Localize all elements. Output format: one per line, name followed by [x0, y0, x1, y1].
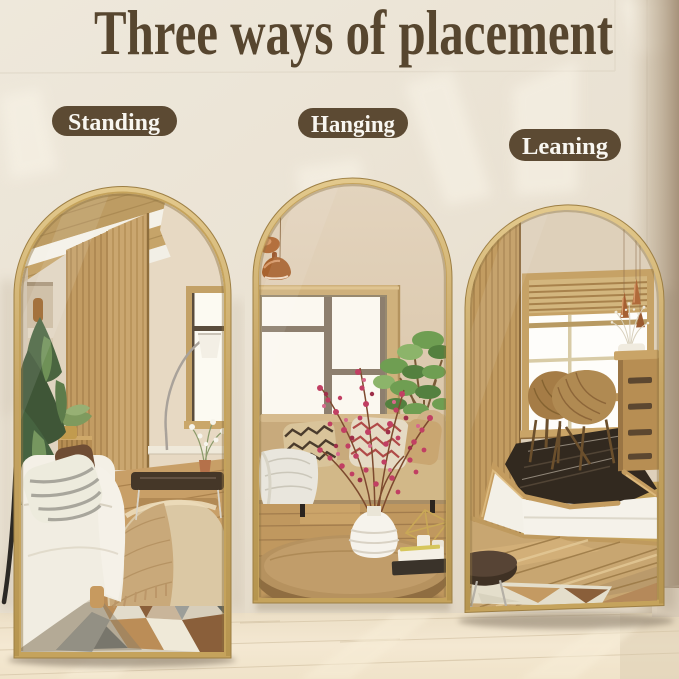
svg-text:Leaning: Leaning	[522, 134, 608, 160]
svg-text:Standing: Standing	[68, 110, 160, 136]
svg-text:Three ways of placement: Three ways of placement	[94, 0, 614, 68]
svg-text:Hanging: Hanging	[311, 112, 395, 138]
